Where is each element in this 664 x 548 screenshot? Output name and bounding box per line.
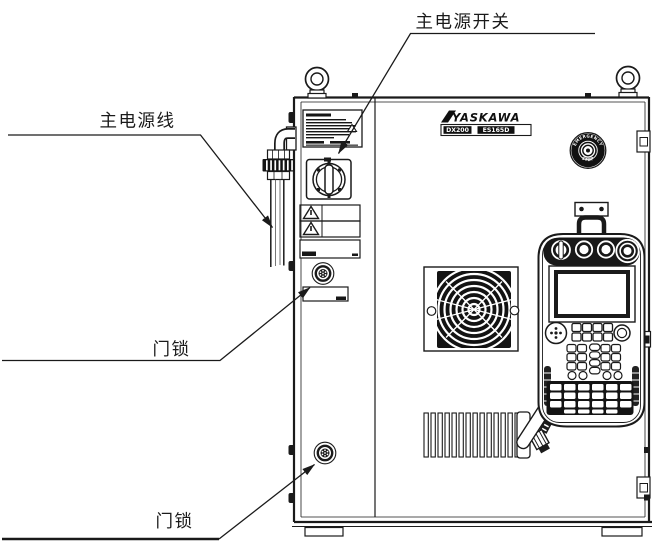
manual-figure-page: YASKAWA DX200 ES165D EMERGENCY STOP xyxy=(0,0,664,548)
warning-triangle-icon xyxy=(304,207,319,219)
switch-handle xyxy=(325,165,333,194)
callout-door-lock-lower: 门锁 xyxy=(2,465,315,540)
hinge-left-middle xyxy=(289,261,296,271)
door-lock-lower xyxy=(314,442,336,464)
pendant-hanger xyxy=(575,203,608,234)
door-lock-upper xyxy=(312,263,334,285)
controller-model-badge: DX200 xyxy=(446,127,470,134)
hinge-left-lower xyxy=(289,445,296,455)
top-screw-right xyxy=(585,93,591,98)
callout-door-lock-upper: 门锁 xyxy=(2,288,310,361)
callout-label-main-power-cable: 主电源线 xyxy=(100,112,176,132)
controller-front-view-figure: YASKAWA DX200 ES165D EMERGENCY STOP xyxy=(0,0,664,548)
leader-line xyxy=(8,135,273,228)
info-label xyxy=(300,240,360,258)
power-cable xyxy=(271,180,284,268)
warning-triangle-icon xyxy=(304,223,319,235)
pendant-hook xyxy=(579,218,604,234)
top-screw-left xyxy=(352,93,358,98)
hinge-left-top xyxy=(289,112,296,123)
eyebolt-left xyxy=(306,68,329,99)
door-lock-upper-plate xyxy=(303,287,348,301)
cabinet-foot-right xyxy=(602,528,642,537)
callout-label-door-lock-upper: 门锁 xyxy=(153,340,191,360)
model-nameplate: DX200 ES165D xyxy=(441,125,531,136)
callout-label-main-power-switch: 主电源开关 xyxy=(416,13,511,33)
fan-screw-left xyxy=(427,307,436,316)
door-latch-top xyxy=(637,131,650,152)
cabinet-foot-left xyxy=(305,528,343,537)
hinge-left-bottom xyxy=(289,493,296,503)
brand-logo-text: YASKAWA xyxy=(452,111,520,125)
power-cable-conduit xyxy=(263,127,297,267)
vent-louvers xyxy=(424,413,519,457)
callout-main-power-cable: 主电源线 xyxy=(8,112,273,228)
leader-line xyxy=(219,465,315,540)
teach-pendant xyxy=(515,203,645,455)
warning-labels xyxy=(300,205,360,237)
yaskawa-logo: YASKAWA xyxy=(441,111,520,125)
fan-screw-right xyxy=(510,306,519,315)
pendant-emergency-stop xyxy=(616,240,638,262)
pendant-key-block-bottom xyxy=(547,381,634,415)
main-power-switch xyxy=(307,158,352,200)
pendant-screen xyxy=(549,266,635,322)
fan-grille xyxy=(424,267,519,351)
callout-label-door-lock-lower: 门锁 xyxy=(156,512,194,532)
robot-model-badge: ES165D xyxy=(483,127,510,134)
eyebolt-right xyxy=(617,67,640,98)
emergency-stop-button: EMERGENCY STOP xyxy=(570,133,606,169)
